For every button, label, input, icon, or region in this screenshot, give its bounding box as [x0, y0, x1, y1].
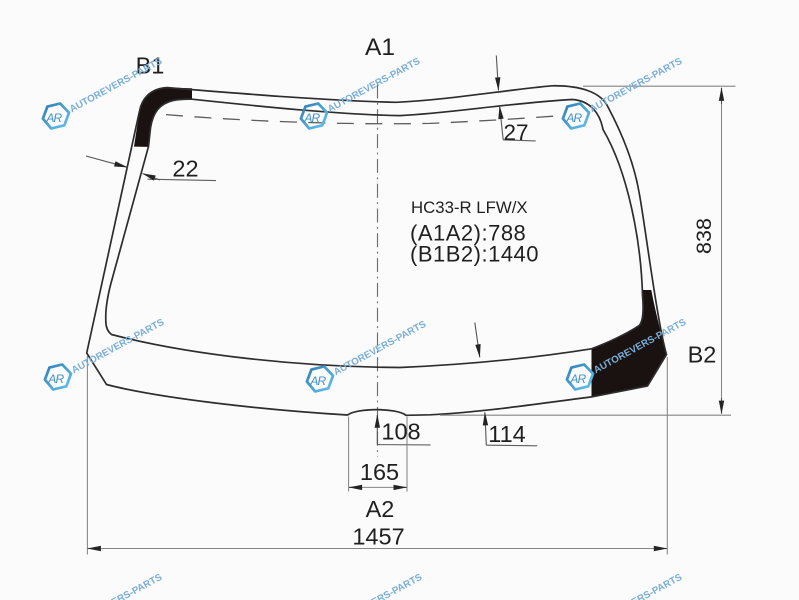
svg-text:27: 27 — [503, 120, 528, 145]
svg-text:(B1B2):1440: (B1B2):1440 — [410, 242, 539, 267]
svg-text:1457: 1457 — [352, 524, 404, 550]
svg-text:HC33-R LFW/X: HC33-R LFW/X — [411, 198, 528, 217]
svg-text:B2: B2 — [688, 342, 717, 368]
svg-text:A2: A2 — [366, 496, 395, 522]
svg-text:108: 108 — [381, 419, 420, 445]
svg-text:22: 22 — [172, 156, 198, 182]
svg-text:A1: A1 — [365, 34, 395, 61]
svg-text:165: 165 — [360, 459, 399, 485]
svg-text:838: 838 — [692, 218, 716, 254]
svg-text:114: 114 — [488, 421, 525, 447]
